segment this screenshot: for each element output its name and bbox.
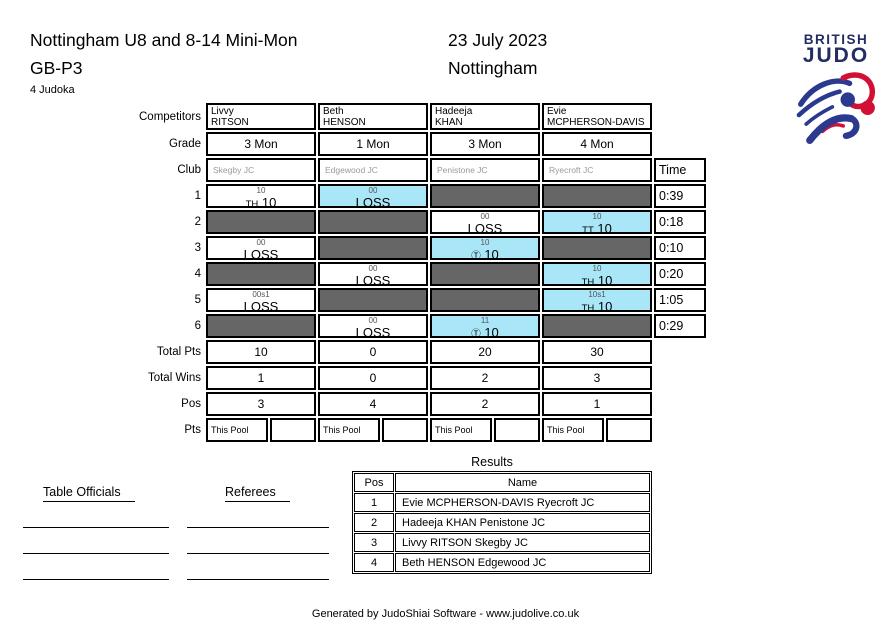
results-row: 1 Evie MCPHERSON-DAVIS Ryecroft JC [354,493,650,512]
match-cell [430,184,540,208]
match-row: 3 00 LOSS 10 Ⓣ 10 0:10 [0,236,706,260]
this-pool-box: This Pool [206,418,268,442]
competitor-first-name: Evie [547,106,647,117]
match-sub-score: 00 [369,265,378,273]
signature-line [23,528,169,554]
match-score: LOSS [356,326,391,341]
match-score: TH 10 [582,300,613,315]
result-pos: 2 [354,513,394,532]
grade-cell: 3 Mon [206,132,316,156]
match-time: 0:10 [654,236,706,260]
match-cell: 10 Ⓣ 10 [430,236,540,260]
match-cell: 00s1 LOSS [206,288,316,312]
pts-empty-box [270,418,316,442]
row-label-total-pts: Total Pts [0,340,204,364]
spacer [654,340,706,364]
match-time: 1:05 [654,288,706,312]
match-sub-score: 10 [593,265,602,273]
match-sub-score: 00 [257,239,266,247]
match-cell [542,236,652,260]
signature-line [23,502,169,528]
time-column-header: Time [654,158,706,182]
total-wins-cell: 2 [430,366,540,390]
club-row: Club Skegby JC Edgewood JC Penistone JC … [0,158,706,182]
event-date: 23 July 2023 [448,30,547,51]
total-pts-cell: 20 [430,340,540,364]
match-sub-score: 11 [481,317,489,325]
match-cell: 10 TH 10 [206,184,316,208]
competitor-first-name: Hadeeja [435,106,535,117]
row-label-pos: Pos [0,392,204,416]
match-cell [206,210,316,234]
this-pool-box: This Pool [430,418,492,442]
total-pts-cell: 0 [318,340,428,364]
match-score: Ⓣ 10 [471,326,499,341]
result-name: Livvy RITSON Skegby JC [395,533,650,552]
match-row: 2 00 LOSS 10 TT 10 0:18 [0,210,706,234]
match-cell [206,262,316,286]
results-table: Pos Name 1 Evie MCPHERSON-DAVIS Ryecroft… [352,471,652,574]
generator-credit: Generated by JudoShiai Software - www.ju… [0,608,891,620]
this-pool-box: This Pool [542,418,604,442]
results-row: 4 Beth HENSON Edgewood JC [354,553,650,572]
result-pos: 4 [354,553,394,572]
signature-line [23,554,169,580]
total-wins-cell: 0 [318,366,428,390]
position-cell: 2 [430,392,540,416]
match-score: LOSS [244,300,279,315]
competitor-last-name: RITSON [211,117,311,128]
competitor-name-cell: Evie MCPHERSON-DAVIS [542,103,652,130]
total-pts-row: Total Pts 10 0 20 30 [0,340,706,364]
match-cell: 10 TT 10 [542,210,652,234]
match-row: 1 10 TH 10 00 LOSS 0:39 [0,184,706,208]
match-row: 6 00 LOSS 11 Ⓣ 10 0:29 [0,314,706,338]
results-col-name: Name [395,473,650,492]
signature-line [187,554,329,580]
pts-group: This Pool [206,418,316,442]
match-number: 3 [0,236,204,260]
total-wins-cell: 3 [542,366,652,390]
referees-block: Referees [187,483,329,580]
this-pool-box: This Pool [318,418,380,442]
row-label-pts: Pts [0,418,204,442]
match-number: 5 [0,288,204,312]
match-number: 4 [0,262,204,286]
pts-group: This Pool [318,418,428,442]
competitor-last-name: KHAN [435,117,535,128]
pts-empty-box [494,418,540,442]
match-cell [318,236,428,260]
match-cell [318,288,428,312]
match-sub-score: 00 [369,317,378,325]
match-cell: 00 LOSS [318,262,428,286]
judoka-count: 4 Judoka [30,84,75,96]
match-cell [318,210,428,234]
pts-row: Pts This Pool This Pool This Pool This P… [0,418,706,442]
match-cell: 00 LOSS [318,314,428,338]
match-time: 0:39 [654,184,706,208]
spacer [654,103,706,130]
match-score: Ⓣ 10 [471,248,499,263]
grade-cell: 3 Mon [430,132,540,156]
position-cell: 4 [318,392,428,416]
match-cell: 00 LOSS [318,184,428,208]
pool-code: GB-P3 [30,58,83,79]
signature-line [187,528,329,554]
pool-table: Competitors Livvy RITSON Beth HENSON Had… [0,103,706,444]
competitor-last-name: MCPHERSON-DAVIS [547,117,647,128]
competitor-name-cell: Hadeeja KHAN [430,103,540,130]
result-pos: 3 [354,533,394,552]
logo-text-judo: JUDO [792,44,880,68]
spacer [654,392,706,416]
row-label-club: Club [0,158,204,182]
match-score: TT 10 [582,222,612,237]
total-wins-row: Total Wins 1 0 2 3 [0,366,706,390]
results-row: 2 Hadeeja KHAN Penistone JC [354,513,650,532]
competitors-row: Competitors Livvy RITSON Beth HENSON Had… [0,103,706,130]
results-col-pos: Pos [354,473,394,492]
spacer [654,132,706,156]
match-sub-score: 00 [369,187,378,195]
match-sub-score: 10 [593,213,602,221]
competitor-name-cell: Livvy RITSON [206,103,316,130]
match-cell: 11 Ⓣ 10 [430,314,540,338]
position-cell: 1 [542,392,652,416]
match-sub-score: 00 [481,213,490,221]
competitor-last-name: HENSON [323,117,423,128]
results-row: 3 Livvy RITSON Skegby JC [354,533,650,552]
match-score: LOSS [468,222,503,237]
judo-figure-icon [794,68,878,144]
pool-sheet-page: Nottingham U8 and 8-14 Mini-Mon GB-P3 23… [0,0,891,630]
total-wins-cell: 1 [206,366,316,390]
match-cell: 00 LOSS [430,210,540,234]
british-judo-logo: BRITISH JUDO [792,32,880,149]
match-cell [542,314,652,338]
match-time: 0:29 [654,314,706,338]
match-cell: 10 TH 10 [542,262,652,286]
grade-cell: 1 Mon [318,132,428,156]
match-score: LOSS [356,274,391,289]
match-score: LOSS [244,248,279,263]
match-time: 0:18 [654,210,706,234]
result-name: Evie MCPHERSON-DAVIS Ryecroft JC [395,493,650,512]
match-score: TH 10 [582,274,613,289]
event-title: Nottingham U8 and 8-14 Mini-Mon [30,30,298,51]
total-pts-cell: 10 [206,340,316,364]
match-score: TH 10 [246,196,277,211]
match-number: 6 [0,314,204,338]
match-row: 4 00 LOSS 10 TH 10 0:20 [0,262,706,286]
spacer [654,366,706,390]
pts-group: This Pool [542,418,652,442]
pts-empty-box [382,418,428,442]
competitor-first-name: Beth [323,106,423,117]
grade-cell: 4 Mon [542,132,652,156]
club-cell: Penistone JC [430,158,540,182]
result-name: Beth HENSON Edgewood JC [395,553,650,572]
total-pts-cell: 30 [542,340,652,364]
match-sub-score: 10 [257,187,266,195]
event-location: Nottingham [448,58,538,79]
row-label-grade: Grade [0,132,204,156]
match-number: 2 [0,210,204,234]
match-cell [430,288,540,312]
referees-label: Referees [225,485,290,502]
position-row: Pos 3 4 2 1 [0,392,706,416]
match-number: 1 [0,184,204,208]
match-cell [542,184,652,208]
match-row: 5 00s1 LOSS 10s1 TH 10 1:05 [0,288,706,312]
result-name: Hadeeja KHAN Penistone JC [395,513,650,532]
row-label-total-wins: Total Wins [0,366,204,390]
table-officials-block: Table Officials [23,483,169,580]
match-sub-score: 10s1 [588,291,605,299]
club-cell: Ryecroft JC [542,158,652,182]
club-cell: Edgewood JC [318,158,428,182]
pts-empty-box [606,418,652,442]
results-title: Results [352,455,632,469]
match-cell: 00 LOSS [206,236,316,260]
club-cell: Skegby JC [206,158,316,182]
match-sub-score: 10 [481,239,490,247]
match-time: 0:20 [654,262,706,286]
pts-group: This Pool [430,418,540,442]
match-cell: 10s1 TH 10 [542,288,652,312]
match-cell [430,262,540,286]
competitor-name-cell: Beth HENSON [318,103,428,130]
table-officials-label: Table Officials [43,485,135,502]
spacer [654,418,706,442]
competitor-first-name: Livvy [211,106,311,117]
match-cell [206,314,316,338]
result-pos: 1 [354,493,394,512]
results-header-row: Pos Name [354,473,650,492]
signature-line [187,502,329,528]
match-sub-score: 00s1 [252,291,269,299]
position-cell: 3 [206,392,316,416]
row-label-competitors: Competitors [0,103,204,130]
grade-row: Grade 3 Mon 1 Mon 3 Mon 4 Mon [0,132,706,156]
match-score: LOSS [356,196,391,211]
